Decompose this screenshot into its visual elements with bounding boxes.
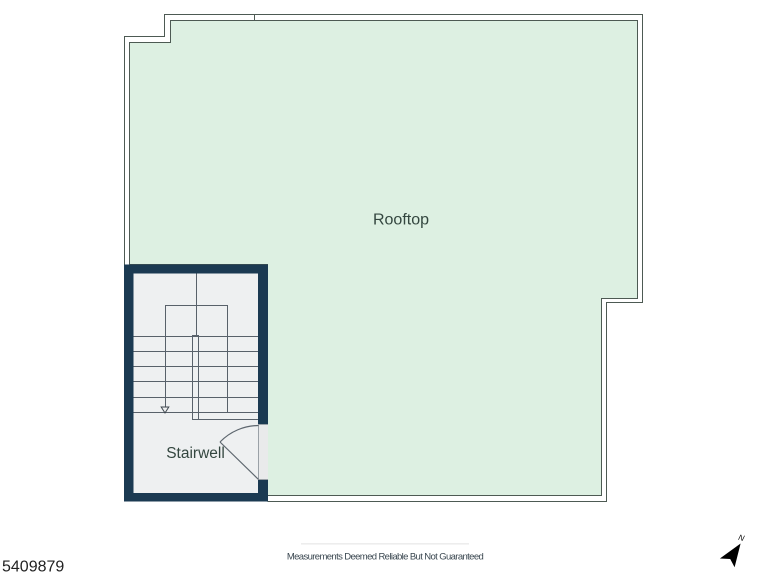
svg-text:Measurements Deemed Reliable B: Measurements Deemed Reliable But Not Gua… [287,552,484,563]
svg-text:5409879: 5409879 [2,559,64,576]
svg-text:Stairwell: Stairwell [166,445,225,462]
svg-text:Rooftop: Rooftop [373,212,429,229]
